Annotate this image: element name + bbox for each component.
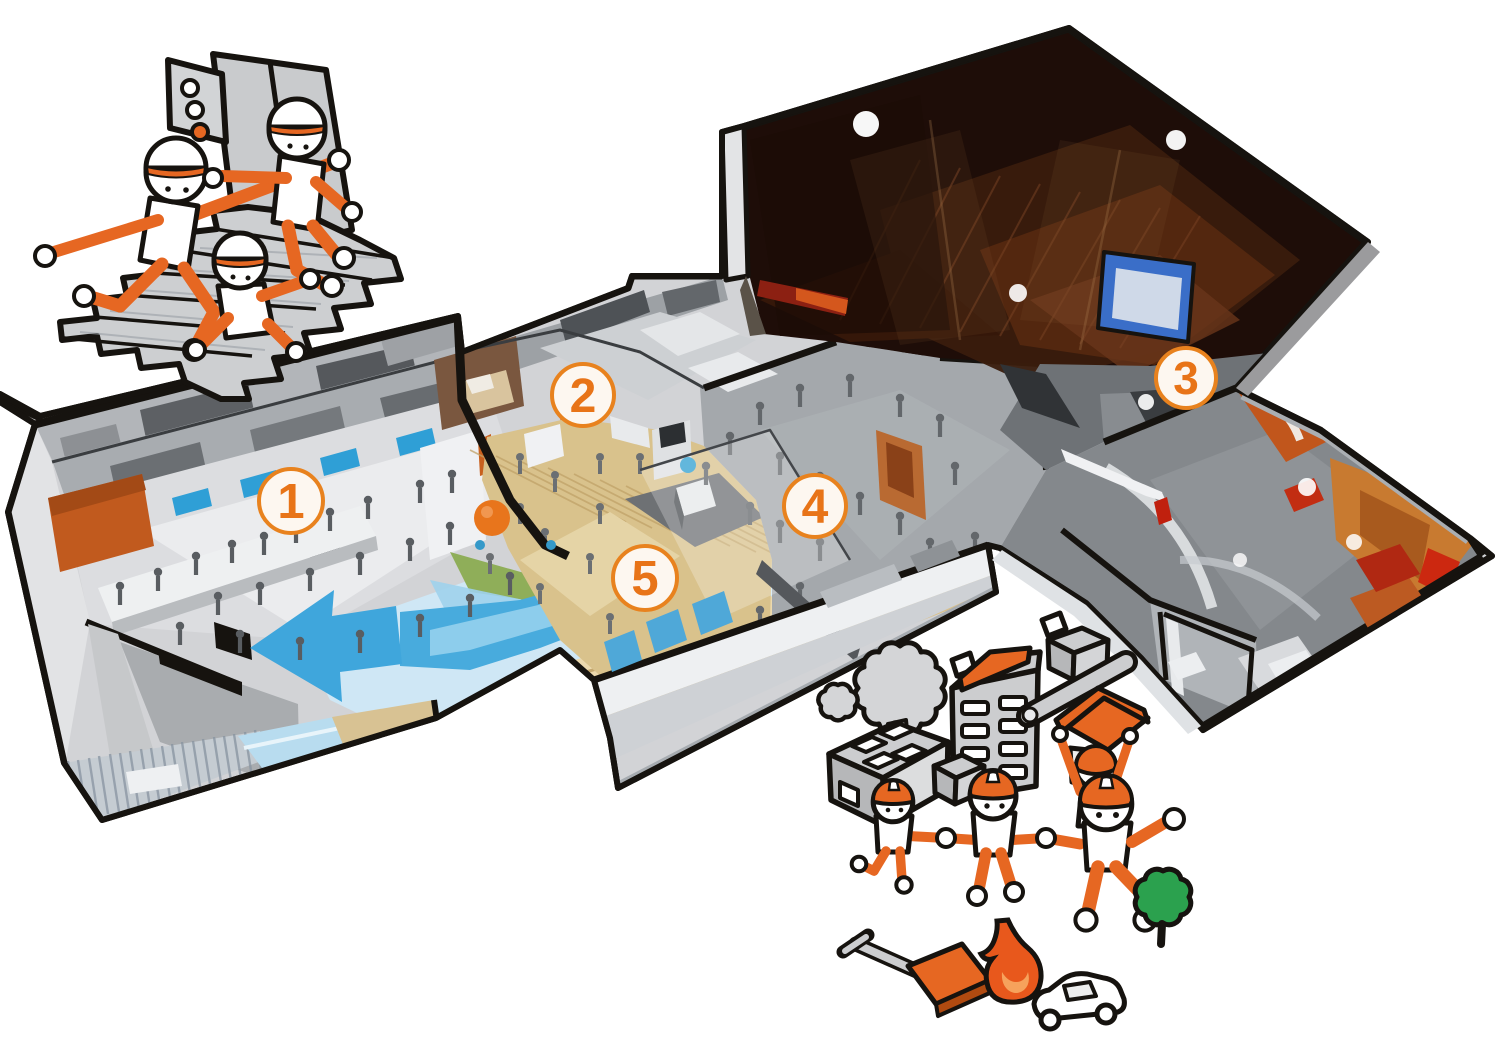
svg-text:1: 1 [277,475,304,529]
svg-text:3: 3 [1173,352,1199,404]
svg-text:4: 4 [802,481,829,534]
svg-text:2: 2 [570,370,597,423]
svg-text:5: 5 [631,552,658,606]
